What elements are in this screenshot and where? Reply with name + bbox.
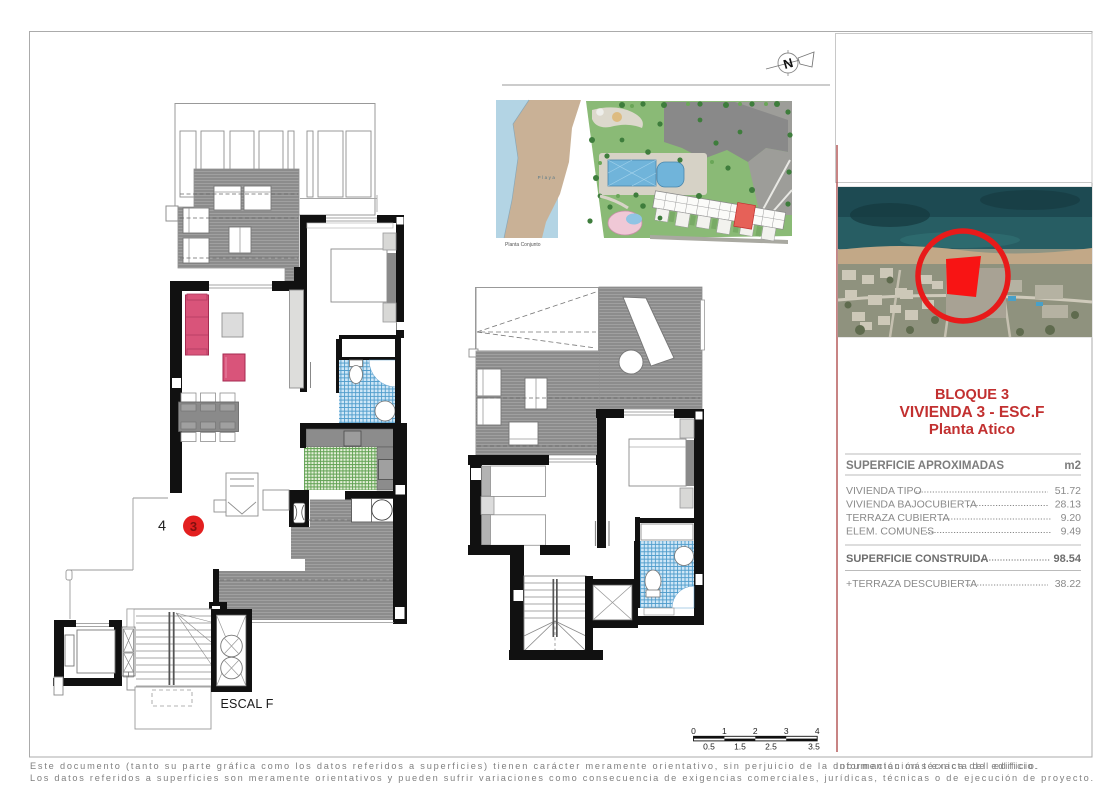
svg-text:+TERRAZA DESCUBIERTA: +TERRAZA DESCUBIERTA — [846, 578, 977, 590]
svg-text:VIVIENDA TIPO: VIVIENDA TIPO — [846, 485, 922, 497]
svg-text:1: 1 — [722, 726, 727, 736]
svg-text:4: 4 — [158, 519, 166, 535]
svg-text:Playa: Playa — [538, 175, 557, 180]
svg-text:BLOQUE 3: BLOQUE 3 — [935, 387, 1009, 403]
svg-text:SUPERFICIE CONSTRUIDA: SUPERFICIE CONSTRUIDA — [846, 553, 988, 565]
svg-text:2.5: 2.5 — [765, 742, 777, 752]
svg-text:SUPERFICIE APROXIMADAS: SUPERFICIE APROXIMADAS — [846, 460, 1004, 472]
svg-text:0: 0 — [691, 726, 696, 736]
svg-text:1.5: 1.5 — [734, 742, 746, 752]
svg-text:3: 3 — [784, 726, 789, 736]
svg-text:m2: m2 — [1064, 460, 1081, 472]
svg-text:9.20: 9.20 — [1061, 512, 1082, 524]
svg-text:TERRAZA CUBIERTA: TERRAZA CUBIERTA — [846, 512, 949, 524]
svg-text:Los datos referidos a superfic: Los datos referidos a superficies son me… — [30, 773, 1093, 783]
svg-text:98.54: 98.54 — [1053, 553, 1081, 565]
svg-text:38.22: 38.22 — [1055, 578, 1081, 590]
svg-text:3: 3 — [190, 519, 197, 534]
svg-text:28.13: 28.13 — [1055, 499, 1081, 511]
svg-text:VIVIENDA BAJOCUBIERTA: VIVIENDA BAJOCUBIERTA — [846, 499, 977, 511]
svg-text:4: 4 — [815, 726, 820, 736]
svg-text:VIVIENDA 3 - ESC.F: VIVIENDA 3 - ESC.F — [900, 404, 1045, 421]
svg-text:Planta Atico: Planta Atico — [929, 421, 1015, 438]
svg-text:N: N — [782, 55, 795, 72]
svg-text:Planta Conjunto: Planta Conjunto — [505, 242, 541, 248]
svg-text:0.5: 0.5 — [703, 742, 715, 752]
svg-text:9.49: 9.49 — [1061, 526, 1082, 538]
svg-text:ESCAL F: ESCAL F — [221, 697, 274, 711]
svg-text:3.5: 3.5 — [808, 742, 820, 752]
svg-text:51.72: 51.72 — [1055, 485, 1081, 497]
svg-text:2: 2 — [753, 726, 758, 736]
svg-text:ELEM. COMUNES: ELEM. COMUNES — [846, 526, 934, 538]
